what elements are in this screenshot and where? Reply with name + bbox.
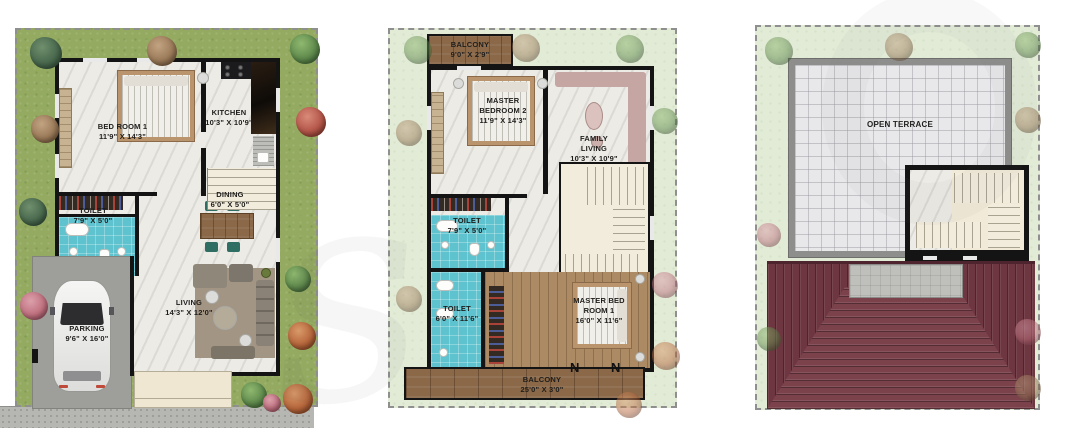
side-table	[197, 72, 209, 84]
room-label-open-terrace: OPEN TERRACE	[795, 120, 1005, 130]
room-label-toilet-lower: TOILET 6'0" X 11'6"	[424, 304, 490, 324]
car-windshield	[60, 303, 104, 325]
tree-icon	[652, 108, 678, 134]
burner	[238, 72, 243, 77]
sofa	[628, 72, 646, 174]
wardrobe	[431, 198, 491, 211]
pillow	[474, 82, 528, 92]
tree-icon	[290, 34, 320, 64]
ground-floor-plan: BED ROOM 1 11'9" X 14'3" KITCHEN 10'3" X…	[15, 28, 318, 407]
boundary-wall	[130, 256, 134, 376]
tree-icon	[1015, 375, 1041, 401]
sofa	[256, 280, 274, 346]
tree-icon	[296, 107, 326, 137]
room-label-parking: PARKING 9'6" X 16'0"	[47, 324, 127, 344]
tree-icon	[263, 394, 281, 412]
tree-icon	[1015, 319, 1041, 345]
wardrobe	[431, 92, 444, 174]
pillow	[124, 76, 188, 86]
wc	[469, 243, 480, 256]
tree-icon	[757, 223, 781, 247]
tv-unit	[211, 346, 255, 359]
tree-icon	[30, 37, 62, 69]
interior-wall	[201, 148, 206, 196]
entrance-steps	[134, 371, 232, 408]
tree-icon	[512, 34, 540, 62]
tree-icon	[1015, 107, 1041, 133]
side-table	[537, 78, 548, 89]
dining-chair	[227, 242, 240, 252]
bathtub	[436, 280, 454, 291]
room-label-master-bedroom2: MASTER BEDROOM 2 11'9" X 14'3"	[453, 96, 553, 125]
basin	[439, 348, 448, 357]
concrete-slab	[849, 264, 963, 298]
window	[923, 256, 937, 260]
window	[276, 238, 280, 262]
room-label-master-bedroom1: MASTER BED ROOM 1 16'0" X 11'6"	[552, 296, 646, 325]
basin	[487, 241, 495, 249]
interior-wall	[505, 194, 509, 274]
tree-icon	[765, 37, 793, 65]
tree-icon	[285, 266, 311, 292]
terrace-floor-plan: OPEN TERRACE	[755, 25, 1040, 410]
stair-flight	[988, 204, 1020, 248]
stair-flight	[613, 208, 645, 250]
stair-flight	[587, 167, 645, 205]
car-mirror	[50, 307, 55, 315]
tree-icon	[147, 36, 177, 66]
window	[457, 66, 481, 70]
first-floor-plan: N N BALCONY 9'0" X 2'9" MASTER BEDROOM 2…	[388, 28, 677, 408]
tree-icon	[19, 198, 47, 226]
interior-wall	[135, 192, 139, 276]
tree-icon	[616, 35, 644, 63]
basin	[69, 247, 78, 256]
room-label-toilet-upper: TOILET 7'9" X 5'0"	[434, 216, 500, 236]
stair-flight	[954, 173, 1020, 203]
side-table	[635, 274, 645, 284]
dining-chair	[205, 242, 218, 252]
stairwell	[905, 165, 1029, 255]
room-label-family-living: FAMILY LIVING 10'3" X 10'9"	[560, 134, 628, 163]
car-rear-window	[63, 371, 101, 381]
coffee-table	[585, 102, 603, 130]
tree-icon	[1015, 32, 1041, 58]
tree-icon	[616, 392, 642, 418]
sofa	[229, 264, 253, 282]
floor-plans-canvas: s	[0, 0, 1079, 435]
burner	[225, 65, 230, 70]
room-label-balcony-bottom: BALCONY 25'0" X 3'0"	[498, 375, 586, 395]
tree-icon	[757, 327, 781, 351]
window	[276, 88, 280, 112]
sloped-roof	[767, 261, 1035, 409]
room-label-dining: DINING 6'0" X 5'0"	[197, 190, 263, 210]
sink-unit	[253, 136, 274, 166]
tree-icon	[396, 120, 422, 146]
tree-icon	[404, 36, 432, 64]
basin	[441, 241, 449, 249]
window	[83, 58, 107, 62]
car-mirror	[109, 307, 114, 315]
tree-icon	[283, 384, 313, 414]
tree-icon	[20, 292, 48, 320]
tree-icon	[396, 286, 422, 312]
window-symbols: N N	[570, 360, 634, 375]
burner	[225, 72, 230, 77]
room-label-toilet: TOILET 7'9" X 5'0"	[59, 206, 127, 226]
basin	[117, 247, 126, 256]
wardrobe	[489, 286, 504, 364]
room-label-balcony-top: BALCONY 9'0" X 2'9"	[429, 40, 511, 60]
wardrobe	[59, 88, 72, 168]
tree-icon	[288, 322, 316, 350]
side-table	[453, 78, 464, 89]
gate-post	[32, 349, 38, 363]
stair-flight	[916, 222, 982, 248]
stove	[221, 62, 251, 79]
room-label-kitchen: KITCHEN 10'3" X 10'9"	[189, 108, 269, 128]
car-taillight	[59, 385, 68, 388]
car-taillight	[96, 385, 105, 388]
sink	[257, 152, 269, 163]
tree-icon	[31, 115, 59, 143]
window	[963, 256, 977, 260]
room-label-bedroom1: BED ROOM 1 11'9" X 14'3"	[75, 122, 170, 142]
dining-table	[200, 213, 254, 239]
plant-icon	[261, 268, 271, 278]
side-table	[635, 352, 645, 362]
window	[650, 216, 654, 240]
tree-icon	[652, 342, 680, 370]
tree-icon	[885, 33, 913, 61]
tree-icon	[652, 272, 678, 298]
burner	[238, 65, 243, 70]
sofa	[193, 264, 227, 288]
room-label-living: LIVING 14'3" X 12'0"	[154, 298, 224, 318]
